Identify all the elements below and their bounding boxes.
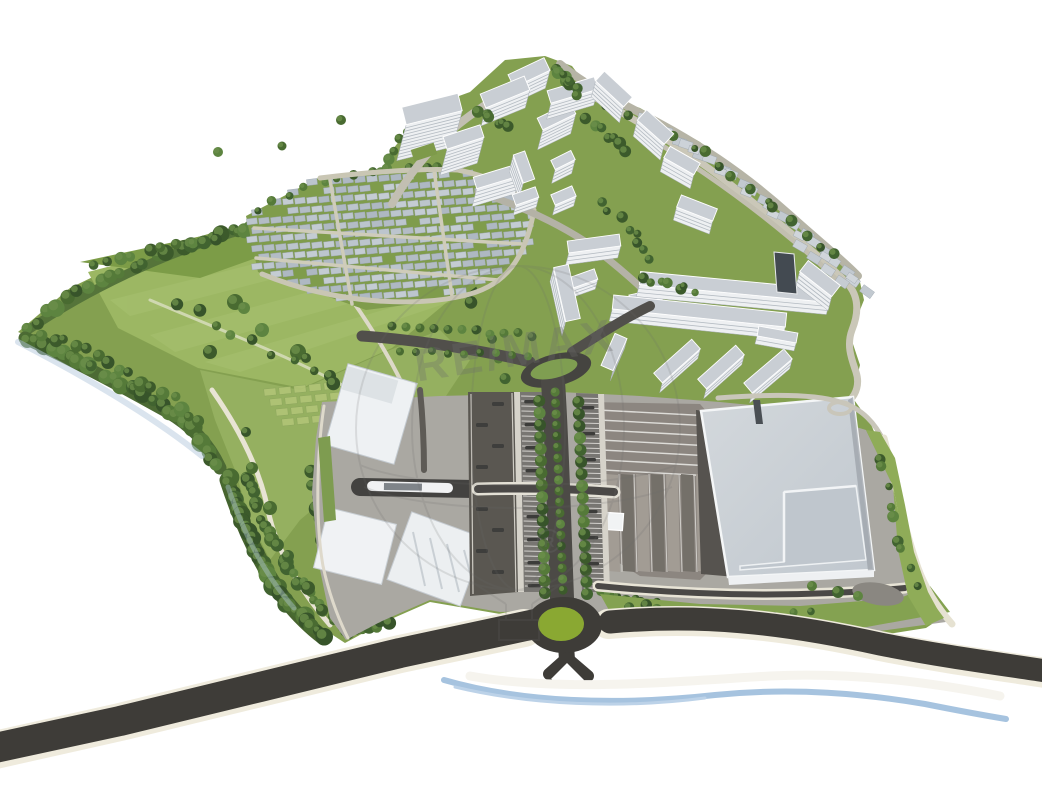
svg-text:R: R (544, 534, 555, 551)
